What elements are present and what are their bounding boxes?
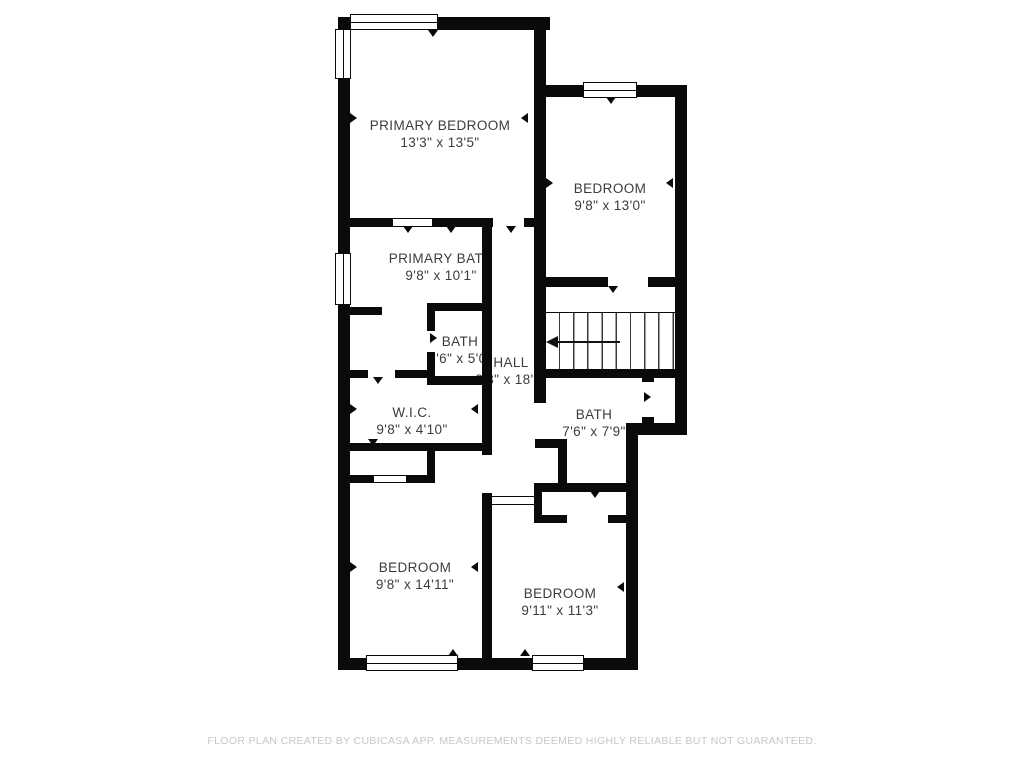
wall [338, 475, 374, 483]
door-tick-icon [506, 226, 516, 233]
wall [632, 423, 687, 435]
wall [482, 218, 492, 455]
wall [427, 303, 435, 331]
door-opening [374, 475, 406, 483]
stair-arrow-head-icon [546, 336, 558, 348]
room-label-primary-bedroom: PRIMARY BEDROOM 13'3" x 13'5" [370, 117, 511, 151]
wall [338, 17, 350, 670]
door-tick-icon [608, 286, 618, 293]
door-tick-icon [350, 562, 357, 572]
door-tick-icon [448, 649, 458, 656]
wall [427, 443, 435, 483]
room-label-bedroom-top-right: BEDROOM 9'8" x 13'0" [574, 180, 647, 214]
room-name: PRIMARY BATH [389, 250, 494, 267]
wall [427, 376, 492, 385]
door-tick-icon [403, 226, 413, 233]
wall [558, 439, 567, 484]
door-jamb [642, 417, 654, 425]
door-tick-icon [617, 582, 624, 592]
room-label-primary-bath: PRIMARY BATH 9'8" x 10'1" [389, 250, 494, 284]
room-label-bedroom-bottom-left: BEDROOM 9'8" x 14'11" [376, 559, 454, 593]
room-name: BEDROOM [376, 559, 454, 576]
room-name: BEDROOM [574, 180, 647, 197]
door-tick-icon [368, 439, 378, 446]
door-tick-icon [471, 404, 478, 414]
door-tick-icon [606, 97, 616, 104]
door-tick-icon [350, 113, 357, 123]
stair-direction-arrow [558, 341, 620, 343]
wall [338, 218, 393, 227]
wall [482, 493, 492, 662]
room-label-bedroom-bottom-right: BEDROOM 9'11" x 11'3" [521, 585, 598, 619]
room-dims: 9'8" x 4'10" [376, 421, 447, 438]
wall [338, 443, 490, 451]
door-tick-icon [373, 377, 383, 384]
room-name: PRIMARY BEDROOM [370, 117, 511, 134]
wall [524, 218, 536, 227]
door-opening [492, 496, 534, 505]
room-dims: 9'8" x 10'1" [389, 267, 494, 284]
wall [675, 85, 687, 435]
door-tick-icon [428, 30, 438, 37]
room-name: BATH [562, 406, 625, 423]
door-tick-icon [430, 333, 437, 343]
wall [534, 277, 608, 287]
door-tick-icon [471, 562, 478, 572]
wall [534, 515, 567, 523]
floor-plan: PRIMARY BEDROOM 13'3" x 13'5" BEDROOM 9'… [0, 0, 1024, 768]
wall [626, 423, 638, 670]
room-name: W.I.C. [376, 404, 447, 421]
room-dims: 9'11" x 11'3" [521, 602, 598, 619]
room-label-wic: W.I.C. 9'8" x 4'10" [376, 404, 447, 438]
footer-disclaimer: FLOOR PLAN CREATED BY CUBICASA APP. MEAS… [0, 735, 1024, 747]
room-dims: 13'3" x 13'5" [370, 134, 511, 151]
room-label-bath-right: BATH 7'6" x 7'9" [562, 406, 625, 440]
door-tick-icon [644, 392, 651, 402]
window [335, 29, 351, 79]
window [583, 82, 637, 98]
door-tick-icon [350, 404, 357, 414]
window [532, 655, 584, 671]
door-tick-icon [520, 649, 530, 656]
room-name: BEDROOM [521, 585, 598, 602]
window [366, 655, 458, 671]
door-tick-icon [546, 178, 553, 188]
wall [608, 515, 630, 523]
room-dims: 9'8" x 13'0" [574, 197, 647, 214]
door-tick-icon [666, 178, 673, 188]
room-dims: 9'8" x 14'11" [376, 576, 454, 593]
wall [427, 303, 492, 311]
wall [338, 370, 368, 378]
door-tick-icon [521, 113, 528, 123]
wall [534, 483, 630, 492]
window [350, 14, 438, 30]
door-jamb [642, 376, 654, 382]
wall [534, 369, 687, 378]
wall [534, 17, 546, 403]
room-dims: 7'6" x 7'9" [562, 423, 625, 440]
window [335, 253, 351, 305]
door-tick-icon [446, 226, 456, 233]
wall [338, 307, 382, 315]
door-tick-icon [590, 491, 600, 498]
wall [648, 277, 687, 287]
